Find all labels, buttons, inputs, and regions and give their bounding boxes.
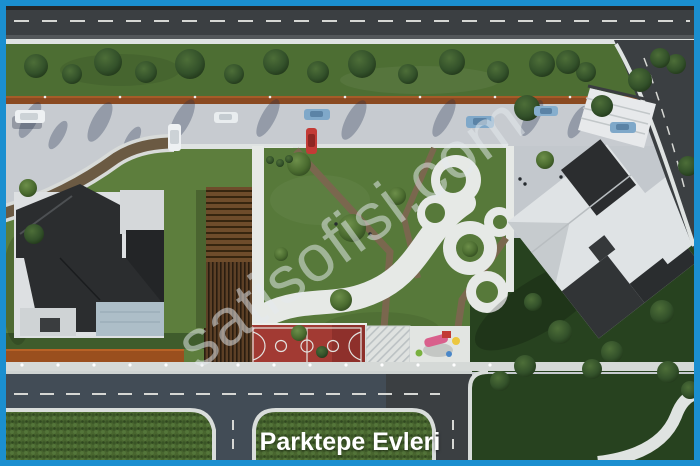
site-plan-aerial-render [6,6,694,460]
car-blue-3 [534,106,558,116]
top-road [6,6,694,44]
park-stairs [366,326,410,368]
car-white-van-vertical [168,124,181,151]
car-white-van [12,110,45,129]
pergola-deck [196,187,252,328]
corten-strip-highlight [6,349,184,351]
framed-render: satisofisi.com Parktepe Evleri [0,0,700,466]
car-blue-4 [610,122,636,133]
playground [410,326,470,368]
field-left [6,412,212,460]
car-blue-2 [466,116,494,128]
left-house [6,184,164,345]
car-white [214,112,238,123]
field-center [256,412,433,460]
basketball-court [248,324,366,368]
car-red-vertical [306,128,317,154]
car-blue-1 [304,109,330,120]
